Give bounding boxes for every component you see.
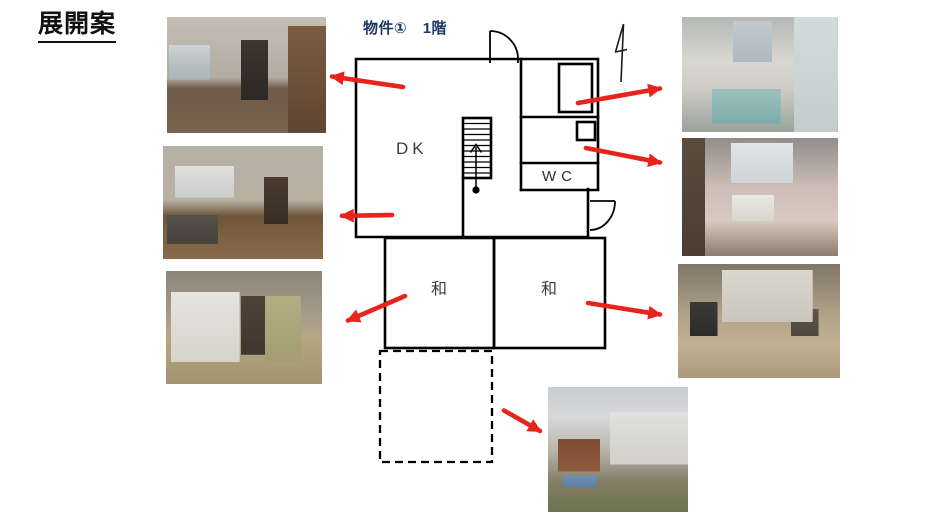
wash-corner-symbol: [577, 122, 595, 140]
arrow-dk-to-living: [342, 215, 392, 216]
stairs-start-dot: [472, 186, 479, 193]
floor-plan-walls: [356, 59, 605, 348]
genkan-door-symbol: [590, 201, 615, 230]
plan-label: 物件① 1階: [363, 21, 447, 38]
arrow-wa-left-to-tatami: [348, 296, 405, 321]
page-title: 展開案: [38, 10, 116, 43]
arrow-wa-right-to-tatami: [588, 303, 660, 315]
room-label-wa-right: 和: [541, 282, 557, 298]
floor-plan-drawing: [0, 0, 938, 521]
bathtub-symbol: [559, 64, 592, 112]
room-label-wc: WC: [542, 169, 577, 184]
arrow-dk-to-kitchen: [332, 77, 403, 88]
room-label-dk: DK: [396, 140, 428, 157]
north-arrow-icon: [616, 24, 628, 82]
arrow-dashed-to-exterior: [504, 411, 540, 432]
arrow-bath-to-photo: [578, 89, 660, 104]
slide-canvas: 展開案 物件① 1階 DK WC 和 和: [0, 0, 938, 521]
dashed-extension-area: [380, 351, 492, 462]
stairs-symbol: [463, 118, 491, 194]
room-label-wa-left: 和: [431, 282, 447, 298]
